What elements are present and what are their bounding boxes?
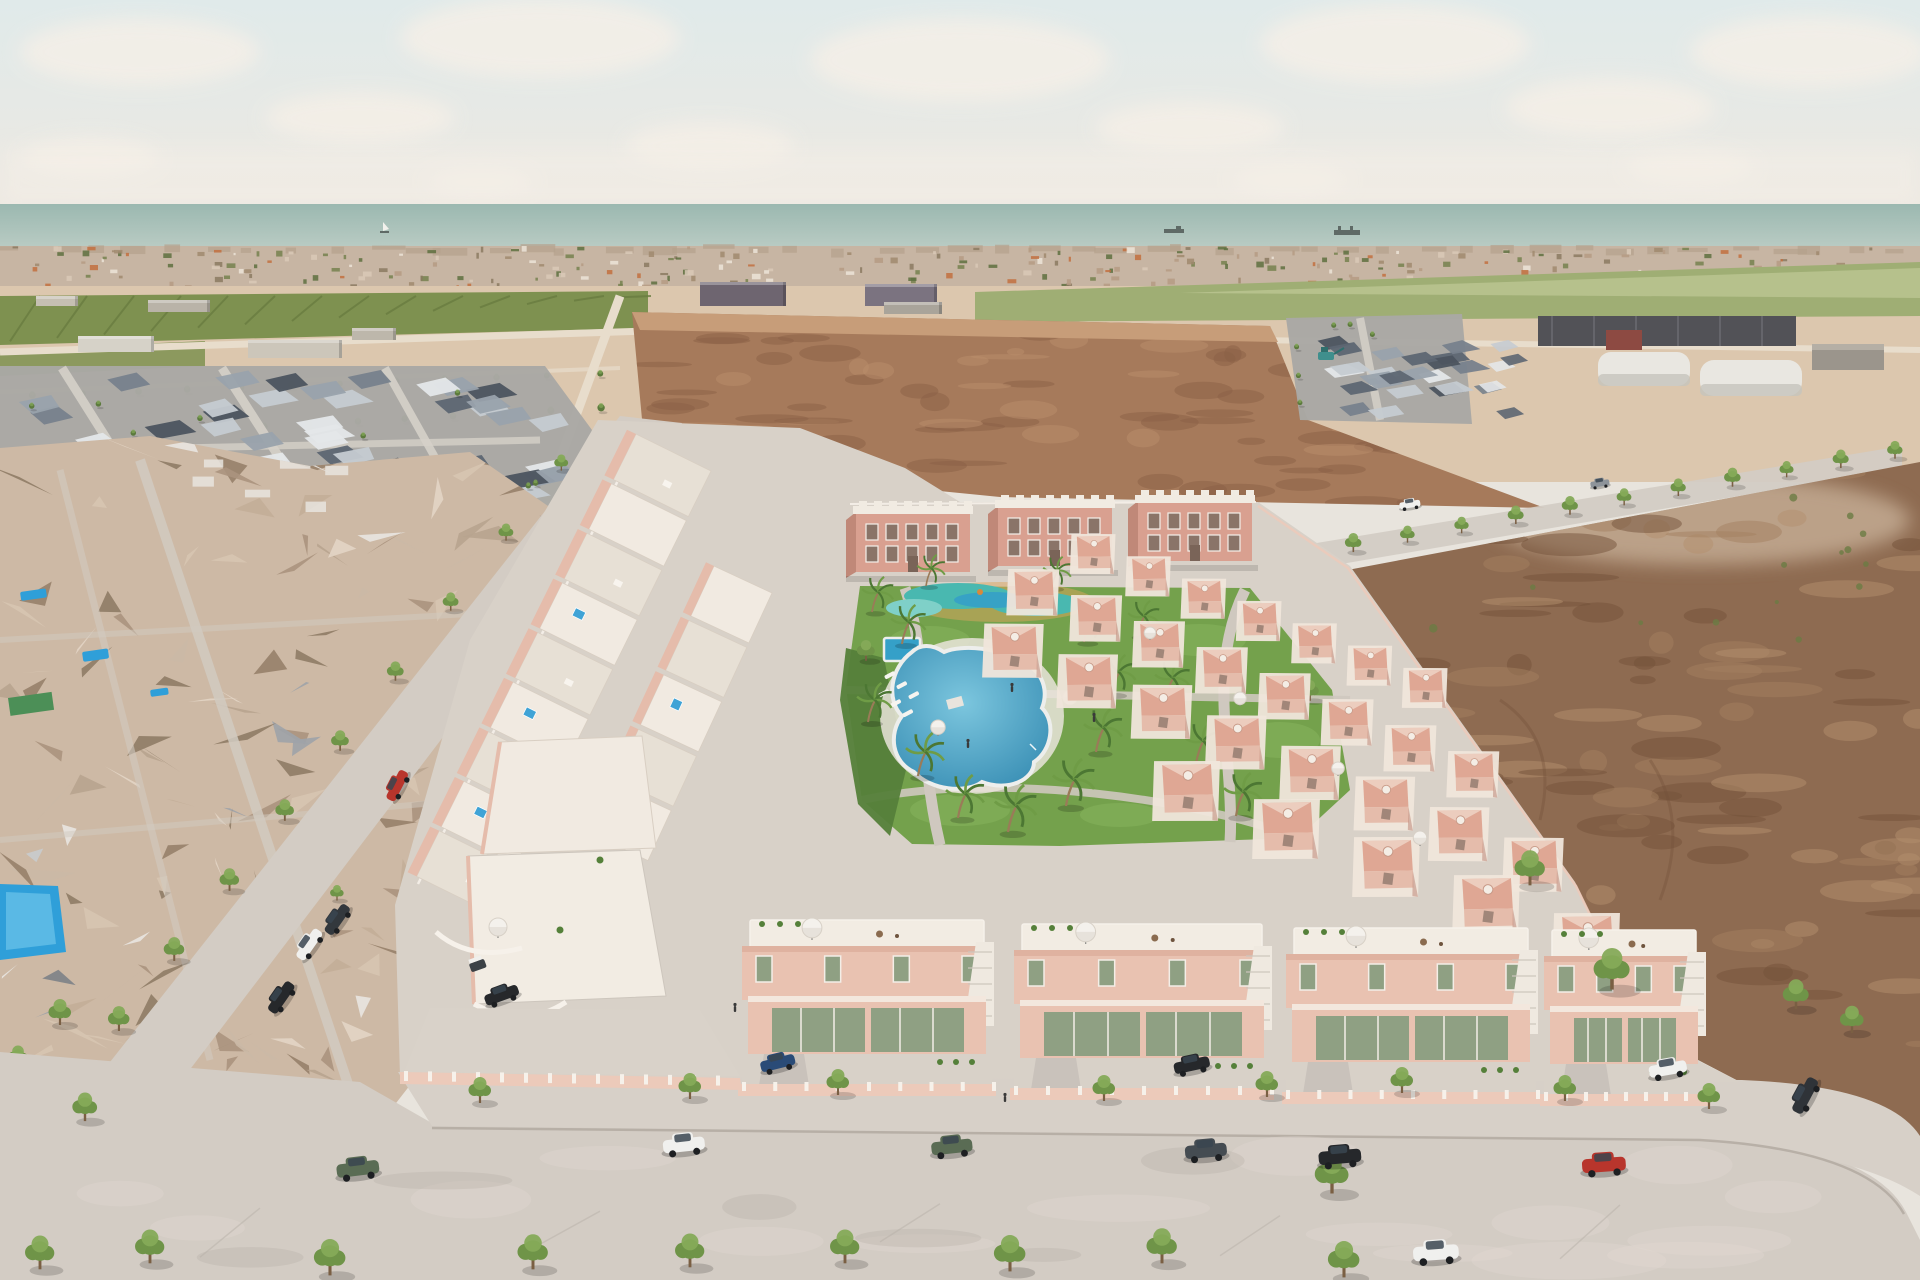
villa-unit bbox=[1066, 528, 1119, 580]
villa-unit bbox=[1287, 618, 1340, 670]
person bbox=[733, 1003, 736, 1012]
villa-unit bbox=[1348, 769, 1420, 839]
warehouse-building bbox=[36, 296, 78, 306]
warehouse-building bbox=[248, 340, 342, 358]
sea bbox=[0, 204, 1920, 252]
warehouse-building bbox=[352, 328, 396, 340]
person bbox=[966, 739, 969, 748]
grey-district-right bbox=[1286, 314, 1490, 424]
warehouse-building bbox=[884, 302, 942, 314]
person bbox=[1003, 1093, 1006, 1102]
warehouse-building bbox=[700, 282, 786, 306]
villa-unit bbox=[1379, 718, 1441, 778]
warehouse-building bbox=[148, 300, 210, 312]
villa-unit bbox=[1232, 595, 1285, 647]
villa-unit bbox=[1065, 588, 1127, 648]
aerial-render bbox=[0, 0, 1920, 1280]
villa-unit bbox=[1177, 573, 1230, 625]
villa-unit bbox=[1247, 791, 1326, 868]
villa-unit bbox=[1316, 692, 1378, 752]
warehouse-building bbox=[78, 336, 154, 352]
apartment-block bbox=[846, 501, 976, 582]
villa-unit bbox=[1398, 662, 1451, 714]
render-viewport bbox=[0, 0, 1920, 1280]
villa-unit bbox=[1002, 562, 1064, 622]
villa-unit bbox=[1442, 744, 1504, 804]
white-hangar bbox=[1700, 360, 1802, 396]
villa-unit bbox=[1128, 614, 1190, 674]
white-hangar bbox=[1598, 352, 1690, 386]
villa-unit bbox=[1423, 799, 1495, 869]
villa-unit bbox=[1191, 640, 1253, 700]
villa-unit bbox=[977, 616, 1049, 686]
red-building bbox=[1606, 330, 1642, 350]
grey-shed bbox=[1812, 344, 1884, 370]
villa-unit bbox=[1121, 551, 1174, 603]
villa-unit bbox=[1343, 640, 1396, 692]
villa-unit bbox=[1126, 677, 1198, 747]
person bbox=[1092, 713, 1095, 722]
villa-unit bbox=[1051, 646, 1123, 716]
person bbox=[1010, 683, 1013, 692]
industrial-hall bbox=[1538, 316, 1796, 346]
swimming-pool bbox=[0, 884, 66, 960]
front-villa bbox=[1010, 922, 1274, 1100]
villa-unit bbox=[1147, 753, 1226, 830]
